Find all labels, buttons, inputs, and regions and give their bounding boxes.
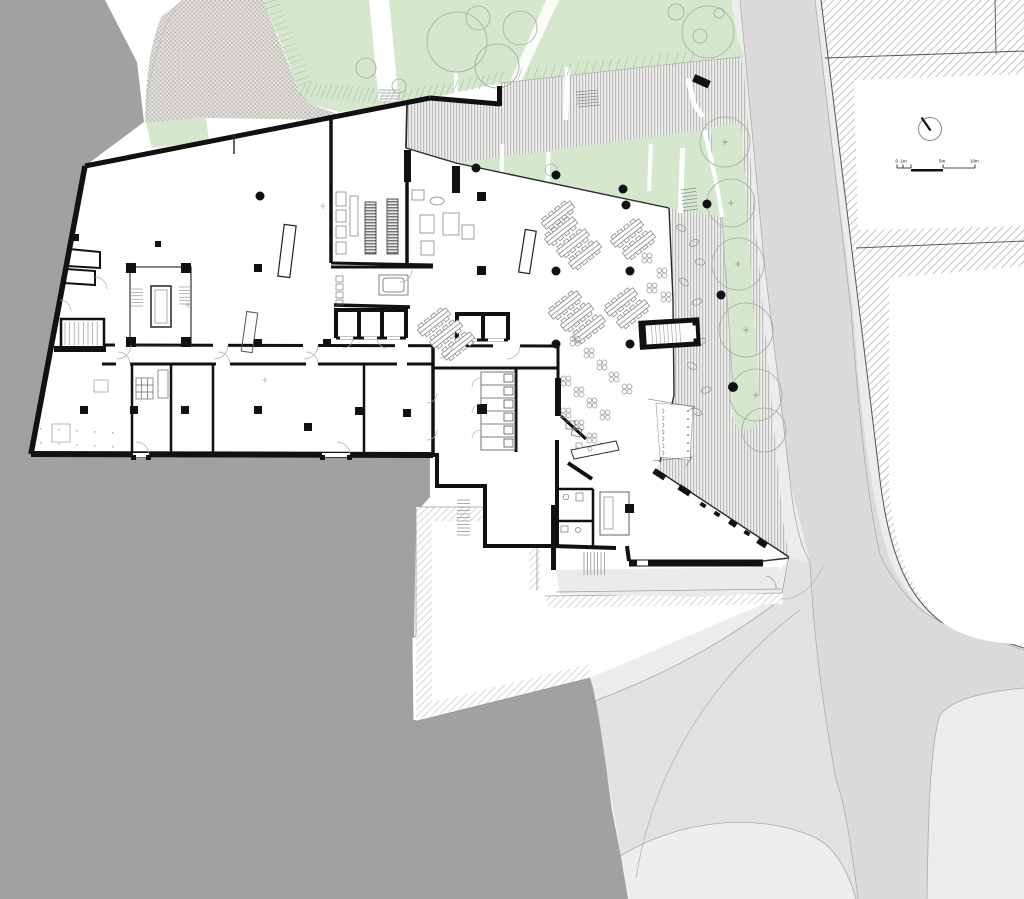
svg-text:1m: 1m xyxy=(901,159,908,164)
svg-text:10m: 10m xyxy=(970,159,979,164)
svg-text:5m: 5m xyxy=(939,159,946,164)
